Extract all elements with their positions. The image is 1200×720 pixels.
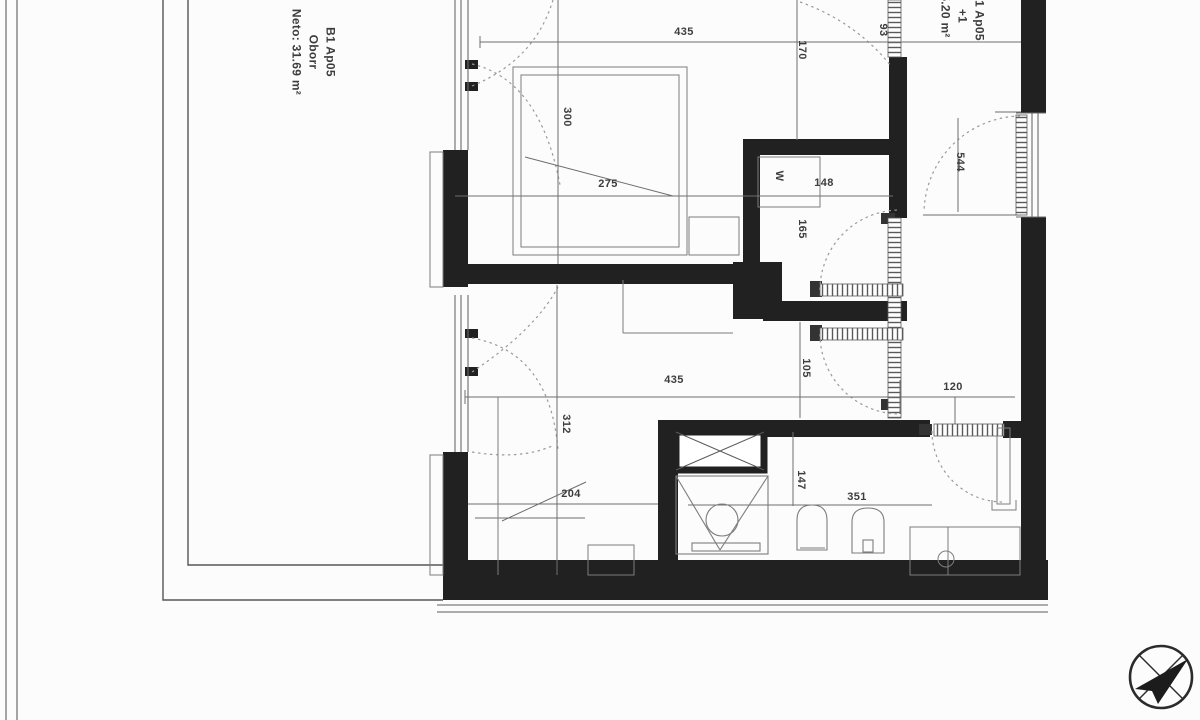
dim-bed-width: 275 xyxy=(598,178,618,190)
dim-hall-width: 105 xyxy=(800,358,812,378)
dim-wardrobe-width: 148 xyxy=(814,177,834,189)
wardrobe-letter: W xyxy=(773,171,785,182)
dim-wardrobe-depth: 165 xyxy=(796,219,808,239)
floor-plan-drawing xyxy=(0,0,1200,720)
bathroom-fixtures xyxy=(676,476,884,554)
right-door-frame xyxy=(923,112,1046,217)
north-compass-icon xyxy=(1124,640,1198,714)
dim-entry-door-width: 93 xyxy=(877,23,889,36)
dim-entry-depth: 170 xyxy=(796,40,808,60)
terrace-label-line2: +1 xyxy=(954,0,971,41)
door-leaves xyxy=(820,0,1027,436)
unit-label-line3: Neto: 31.69 m² xyxy=(288,9,305,95)
facade-base-lines xyxy=(437,605,1048,612)
sheet-border xyxy=(6,0,17,720)
dim-mid-width: 435 xyxy=(664,374,684,386)
shaft xyxy=(676,432,764,470)
unit-label-line2: Oborr xyxy=(305,9,322,95)
dim-right-room-opening: 544 xyxy=(954,152,966,172)
floor-plan-sheet: B1 Ap05 Oborr Neto: 31.69 m² B1 Ap05 +1 … xyxy=(0,0,1200,720)
unit-label-line1: B1 Ap05 xyxy=(322,9,339,95)
dim-bed-length: 300 xyxy=(561,107,573,127)
unit-label: B1 Ap05 Oborr Neto: 31.69 m² xyxy=(288,9,339,95)
terrace-label-line3: 5.20 m² xyxy=(937,0,954,41)
dim-top-width: 435 xyxy=(674,26,694,38)
dim-bath-depth: 147 xyxy=(795,470,807,490)
terrace-label-line1: B1 Ap05 xyxy=(971,0,988,41)
dim-room2-width: 204 xyxy=(561,488,581,500)
dim-bath-width: 351 xyxy=(847,491,867,503)
wall-outer-frames xyxy=(430,152,443,575)
terrace-label: B1 Ap05 +1 5.20 m² xyxy=(937,0,988,41)
dim-room2-depth: 312 xyxy=(560,414,572,434)
dim-bath-door-width: 120 xyxy=(943,381,963,393)
